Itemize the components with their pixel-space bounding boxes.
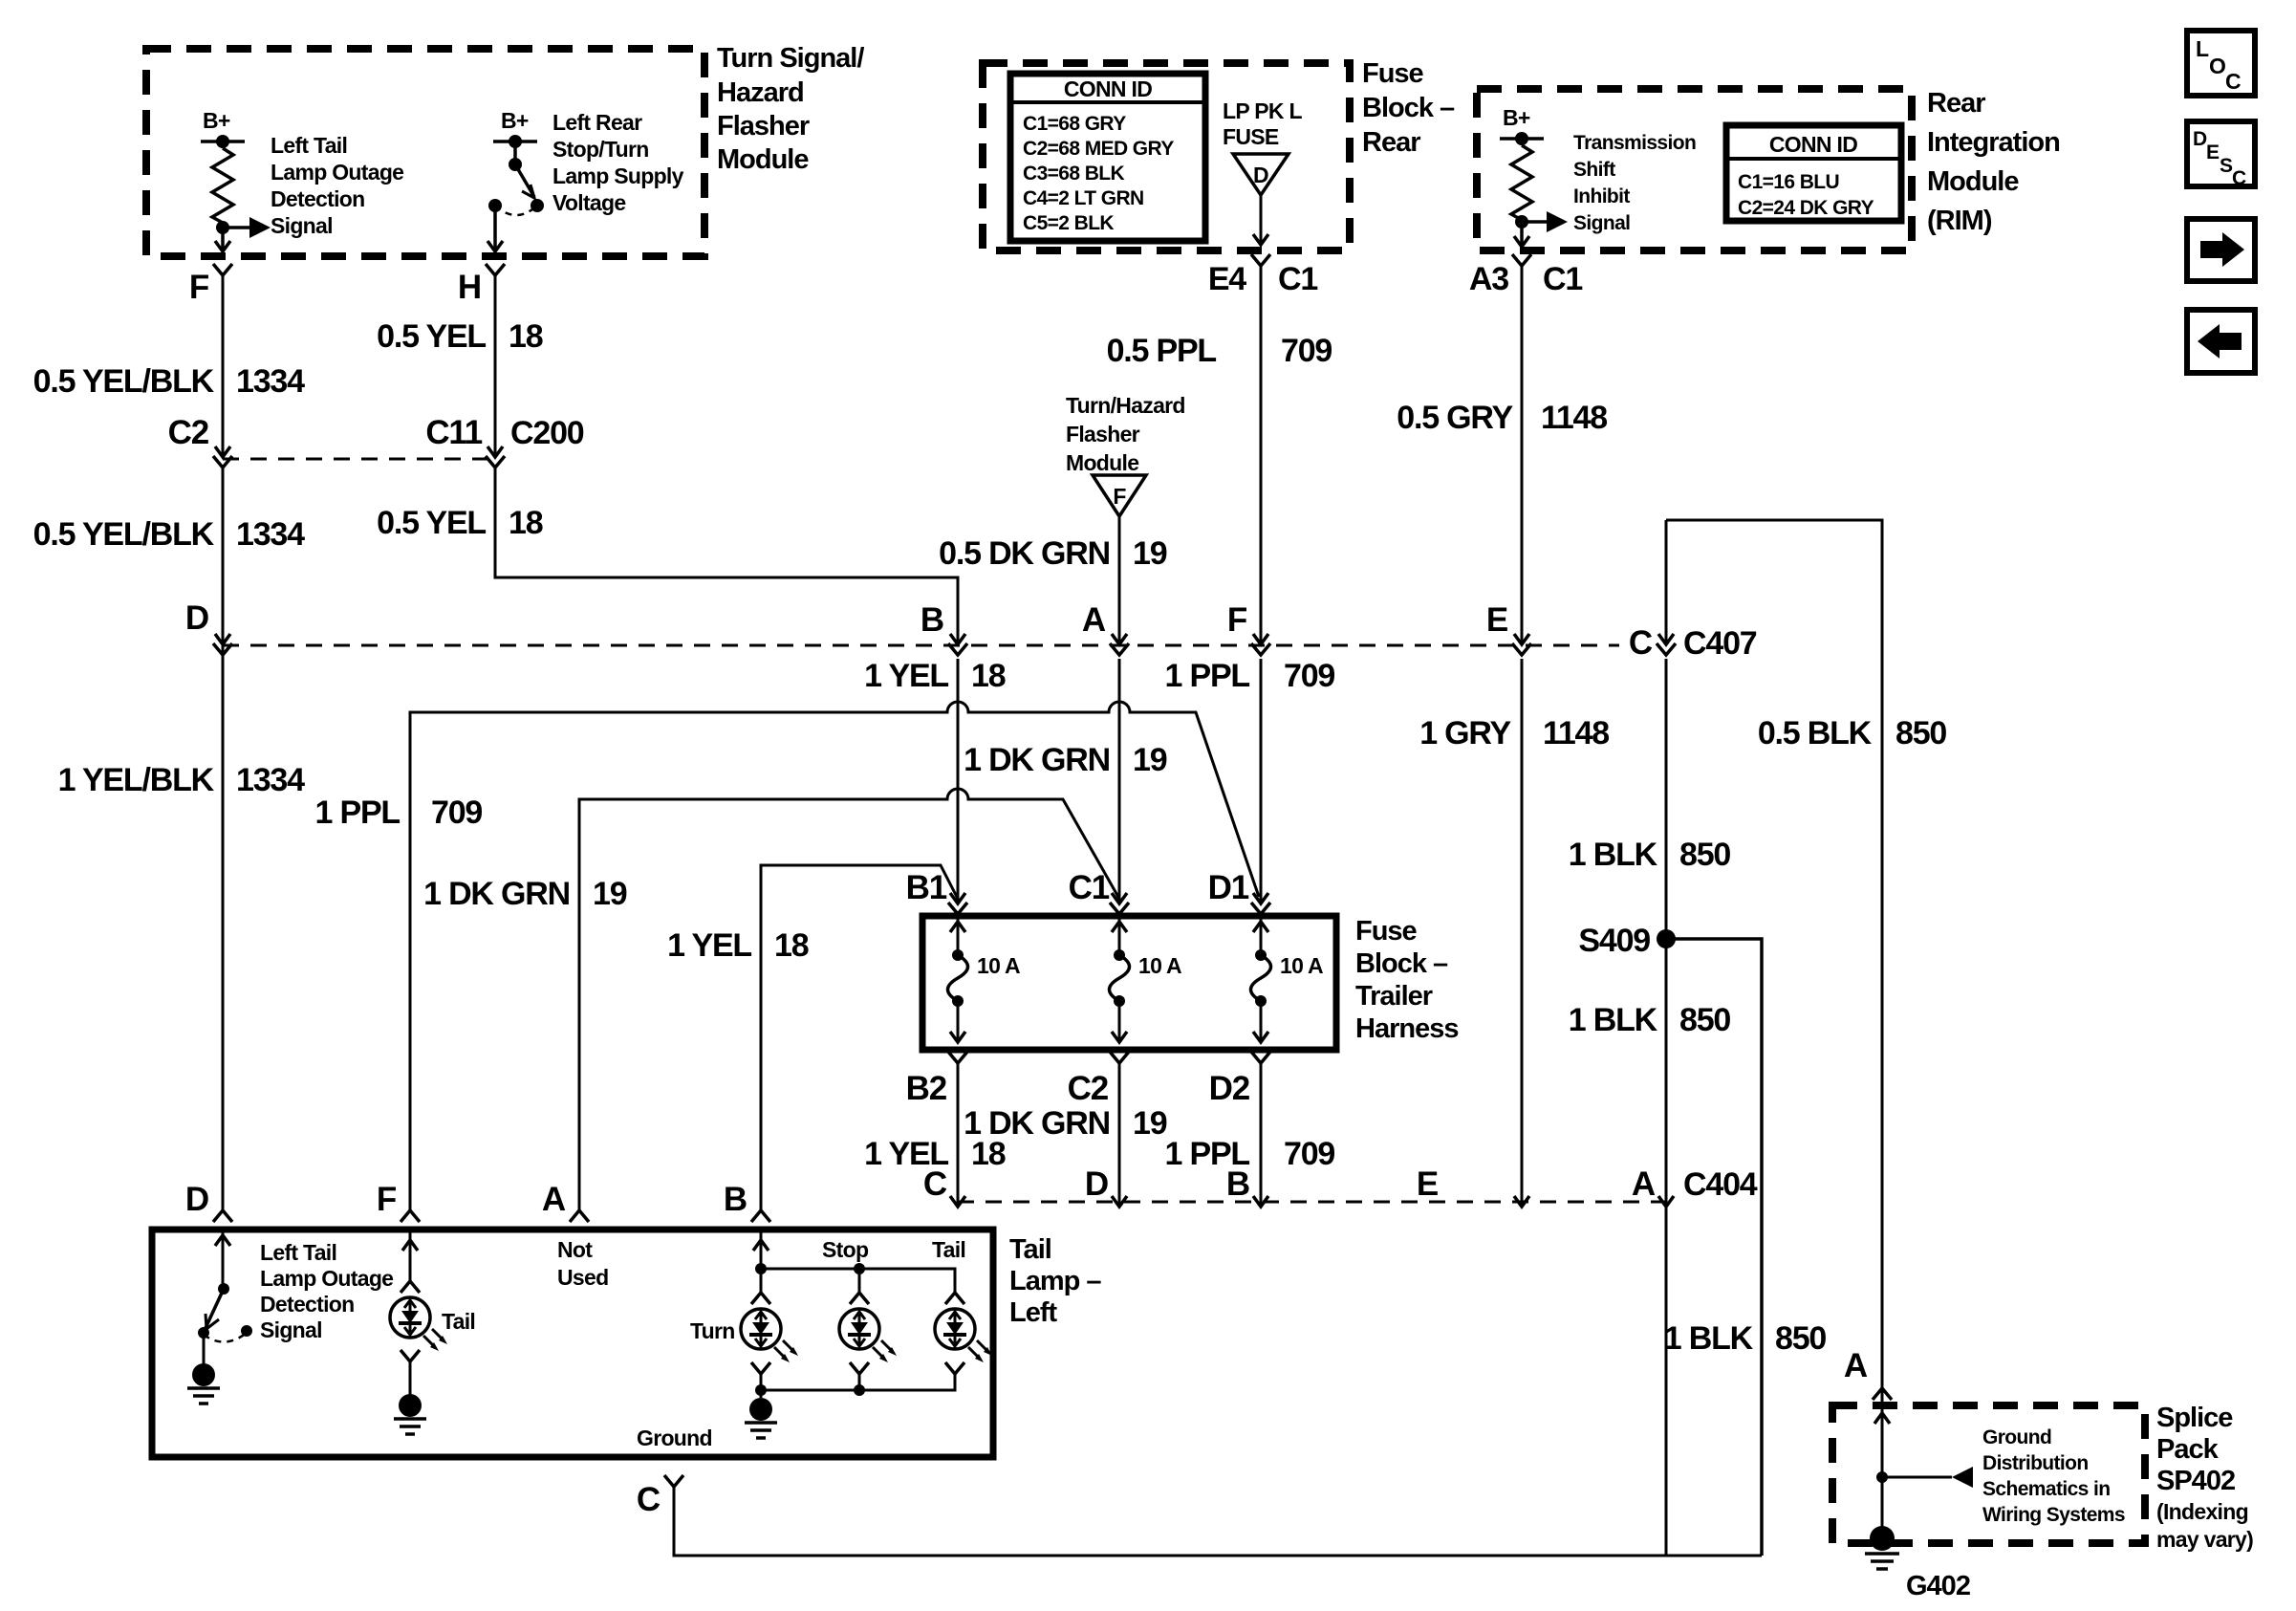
svg-text:Rear: Rear xyxy=(1927,88,1985,119)
svg-text:850: 850 xyxy=(1895,715,1946,751)
svg-text:Voltage: Voltage xyxy=(552,190,625,215)
svg-text:C1: C1 xyxy=(1543,261,1582,297)
svg-text:1 YEL: 1 YEL xyxy=(667,927,751,964)
svg-text:L: L xyxy=(2196,36,2209,61)
svg-text:709: 709 xyxy=(1284,658,1334,694)
svg-text:B: B xyxy=(921,601,943,639)
svg-text:709: 709 xyxy=(1284,1136,1334,1172)
svg-text:Detection: Detection xyxy=(260,1292,355,1317)
svg-text:Left Rear: Left Rear xyxy=(552,110,642,135)
svg-text:Wiring Systems: Wiring Systems xyxy=(1982,1504,2125,1526)
svg-text:C4=2 LT GRN: C4=2 LT GRN xyxy=(1023,187,1144,209)
svg-text:may vary): may vary) xyxy=(2156,1527,2253,1552)
svg-text:1 DK GRN: 1 DK GRN xyxy=(964,742,1110,778)
svg-text:Detection: Detection xyxy=(271,186,365,211)
svg-text:0.5 DK GRN: 0.5 DK GRN xyxy=(939,535,1110,572)
svg-text:C2=24 DK GRY: C2=24 DK GRY xyxy=(1738,197,1874,219)
svg-text:A: A xyxy=(542,1181,566,1218)
svg-text:1334: 1334 xyxy=(236,363,305,400)
svg-text:E: E xyxy=(2206,142,2220,163)
svg-text:B+: B+ xyxy=(1503,105,1530,130)
svg-text:Flasher: Flasher xyxy=(1066,422,1140,446)
svg-text:C2: C2 xyxy=(1068,1070,1109,1107)
svg-text:Integration: Integration xyxy=(1927,127,2060,158)
svg-text:D: D xyxy=(1253,163,1268,187)
svg-text:Rear: Rear xyxy=(1362,127,1420,158)
svg-text:709: 709 xyxy=(1281,333,1332,369)
svg-text:Stop/Turn: Stop/Turn xyxy=(552,137,649,162)
svg-text:F: F xyxy=(377,1181,397,1218)
svg-text:Fuse: Fuse xyxy=(1355,916,1418,947)
svg-text:F: F xyxy=(1227,601,1247,639)
svg-text:Inhibit: Inhibit xyxy=(1573,185,1630,207)
svg-text:C: C xyxy=(637,1481,661,1518)
svg-text:10 A: 10 A xyxy=(977,953,1020,978)
svg-text:A: A xyxy=(1632,1165,1656,1203)
svg-text:D1: D1 xyxy=(1208,869,1249,906)
svg-text:F: F xyxy=(1113,484,1126,509)
svg-text:1 BLK: 1 BLK xyxy=(1664,1320,1754,1357)
svg-text:Tail: Tail xyxy=(442,1309,475,1334)
svg-text:Block –: Block – xyxy=(1355,948,1448,979)
svg-text:19: 19 xyxy=(1133,535,1167,572)
svg-text:C: C xyxy=(2232,167,2246,189)
svg-text:0.5 YEL: 0.5 YEL xyxy=(377,505,486,541)
svg-text:C404: C404 xyxy=(1683,1166,1758,1203)
svg-text:0.5 BLK: 0.5 BLK xyxy=(1758,715,1873,751)
svg-text:10 A: 10 A xyxy=(1138,953,1181,978)
svg-text:D: D xyxy=(2193,128,2207,150)
svg-text:E4: E4 xyxy=(1208,261,1246,297)
svg-text:18: 18 xyxy=(971,1136,1006,1172)
svg-text:A: A xyxy=(1844,1347,1868,1384)
svg-text:Left Tail: Left Tail xyxy=(260,1240,336,1265)
svg-text:0.5 GRY: 0.5 GRY xyxy=(1397,400,1513,436)
svg-text:Harness: Harness xyxy=(1355,1013,1458,1044)
svg-text:E: E xyxy=(1486,601,1507,639)
svg-text:Turn/Hazard: Turn/Hazard xyxy=(1066,393,1185,418)
svg-text:G402: G402 xyxy=(1906,1571,1970,1601)
svg-text:Lamp Outage: Lamp Outage xyxy=(260,1266,393,1291)
svg-text:850: 850 xyxy=(1679,837,1730,873)
svg-text:0.5 YEL/BLK: 0.5 YEL/BLK xyxy=(33,516,215,553)
svg-text:Ground: Ground xyxy=(637,1426,712,1450)
svg-text:Splice: Splice xyxy=(2156,1403,2233,1433)
svg-text:C2=68 MED GRY: C2=68 MED GRY xyxy=(1023,138,1174,160)
svg-text:1 BLK: 1 BLK xyxy=(1569,1002,1658,1038)
svg-text:1334: 1334 xyxy=(236,762,305,798)
svg-text:Transmission: Transmission xyxy=(1573,132,1696,154)
svg-text:709: 709 xyxy=(431,795,482,831)
svg-text:C: C xyxy=(1629,624,1653,662)
svg-text:F: F xyxy=(189,269,209,306)
svg-text:(RIM): (RIM) xyxy=(1927,206,1992,236)
svg-text:Shift: Shift xyxy=(1573,159,1615,181)
svg-text:O: O xyxy=(2209,54,2225,78)
svg-text:C: C xyxy=(923,1165,947,1203)
svg-text:Module: Module xyxy=(1927,166,2019,197)
svg-text:Left: Left xyxy=(1009,1297,1058,1328)
svg-text:1 YEL: 1 YEL xyxy=(864,658,948,694)
svg-text:0.5 PPL: 0.5 PPL xyxy=(1107,333,1217,369)
svg-text:D: D xyxy=(185,599,208,637)
svg-text:1148: 1148 xyxy=(1543,715,1609,751)
svg-text:Signal: Signal xyxy=(260,1317,322,1342)
svg-text:1 DK GRN: 1 DK GRN xyxy=(423,876,570,912)
svg-text:C1: C1 xyxy=(1069,869,1110,906)
svg-text:18: 18 xyxy=(509,318,543,355)
svg-text:Not: Not xyxy=(557,1237,593,1262)
svg-text:C11: C11 xyxy=(425,414,482,451)
svg-text:C5=2 BLK: C5=2 BLK xyxy=(1023,212,1114,234)
svg-text:18: 18 xyxy=(774,927,809,964)
svg-text:Tail: Tail xyxy=(1009,1234,1051,1265)
svg-text:B2: B2 xyxy=(906,1070,947,1107)
svg-text:850: 850 xyxy=(1775,1320,1826,1357)
svg-text:S409: S409 xyxy=(1578,923,1650,959)
svg-text:D: D xyxy=(1085,1165,1108,1203)
svg-text:Module: Module xyxy=(717,144,809,175)
svg-text:0.5 YEL/BLK: 0.5 YEL/BLK xyxy=(33,363,215,400)
svg-text:Fuse: Fuse xyxy=(1362,58,1424,89)
svg-text:B: B xyxy=(724,1181,747,1218)
svg-text:C407: C407 xyxy=(1683,625,1757,662)
svg-text:(Indexing: (Indexing xyxy=(2156,1499,2248,1524)
svg-text:Pack: Pack xyxy=(2156,1434,2220,1465)
svg-text:CONN ID: CONN ID xyxy=(1769,132,1857,157)
svg-text:Stop: Stop xyxy=(822,1237,869,1262)
svg-text:C200: C200 xyxy=(510,415,584,451)
svg-text:1148: 1148 xyxy=(1541,400,1607,436)
svg-text:A3: A3 xyxy=(1469,261,1508,297)
svg-text:A: A xyxy=(1082,601,1106,639)
svg-text:Trailer: Trailer xyxy=(1355,981,1433,1012)
svg-text:1 YEL/BLK: 1 YEL/BLK xyxy=(58,762,215,798)
svg-text:Signal: Signal xyxy=(1573,212,1630,234)
svg-text:Lamp Supply: Lamp Supply xyxy=(552,163,684,188)
svg-text:S: S xyxy=(2220,155,2233,177)
svg-text:Used: Used xyxy=(557,1265,608,1290)
svg-text:1 PPL: 1 PPL xyxy=(1165,658,1250,694)
svg-text:B1: B1 xyxy=(906,869,947,906)
svg-text:Lamp Outage: Lamp Outage xyxy=(271,160,403,185)
svg-text:Lamp –: Lamp – xyxy=(1009,1266,1101,1296)
svg-text:1 GRY: 1 GRY xyxy=(1419,715,1511,751)
svg-text:D2: D2 xyxy=(1209,1070,1250,1107)
svg-text:Ground: Ground xyxy=(1982,1426,2051,1448)
svg-text:C2: C2 xyxy=(168,414,209,451)
svg-text:C: C xyxy=(2225,69,2241,94)
svg-text:1 BLK: 1 BLK xyxy=(1569,837,1658,873)
svg-text:19: 19 xyxy=(1133,1105,1167,1142)
svg-text:H: H xyxy=(458,269,481,306)
svg-text:Left Tail: Left Tail xyxy=(271,133,347,158)
svg-text:Turn: Turn xyxy=(690,1318,735,1343)
svg-text:Tail: Tail xyxy=(932,1237,965,1262)
svg-text:C1: C1 xyxy=(1278,261,1317,297)
svg-text:Module: Module xyxy=(1066,450,1138,475)
svg-text:19: 19 xyxy=(593,876,627,912)
svg-text:LP PK L: LP PK L xyxy=(1223,98,1303,123)
svg-text:1334: 1334 xyxy=(236,516,305,553)
svg-text:18: 18 xyxy=(971,658,1006,694)
svg-text:CONN ID: CONN ID xyxy=(1064,76,1152,101)
svg-text:Turn Signal/: Turn Signal/ xyxy=(717,43,864,74)
svg-text:Hazard: Hazard xyxy=(717,77,804,108)
svg-text:Flasher: Flasher xyxy=(717,111,810,142)
svg-text:Signal: Signal xyxy=(271,213,333,238)
svg-text:0.5 YEL: 0.5 YEL xyxy=(377,318,486,355)
svg-text:E: E xyxy=(1417,1165,1438,1203)
svg-text:C3=68 BLK: C3=68 BLK xyxy=(1023,163,1124,185)
svg-text:18: 18 xyxy=(509,505,543,541)
svg-text:850: 850 xyxy=(1679,1002,1730,1038)
svg-text:Distribution: Distribution xyxy=(1982,1452,2089,1474)
svg-text:B: B xyxy=(1226,1165,1249,1203)
svg-text:FUSE: FUSE xyxy=(1223,124,1279,149)
svg-text:C1=16 BLU: C1=16 BLU xyxy=(1738,171,1839,193)
svg-text:10 A: 10 A xyxy=(1280,953,1323,978)
svg-text:C1=68 GRY: C1=68 GRY xyxy=(1023,113,1126,135)
svg-text:Schematics in: Schematics in xyxy=(1982,1478,2110,1500)
svg-text:1 PPL: 1 PPL xyxy=(315,795,401,831)
svg-text:B+: B+ xyxy=(203,108,230,133)
svg-text:SP402: SP402 xyxy=(2156,1466,2235,1496)
svg-text:B+: B+ xyxy=(501,108,529,133)
svg-text:19: 19 xyxy=(1133,742,1167,778)
svg-text:Block –: Block – xyxy=(1362,93,1455,123)
svg-text:D: D xyxy=(185,1181,208,1218)
